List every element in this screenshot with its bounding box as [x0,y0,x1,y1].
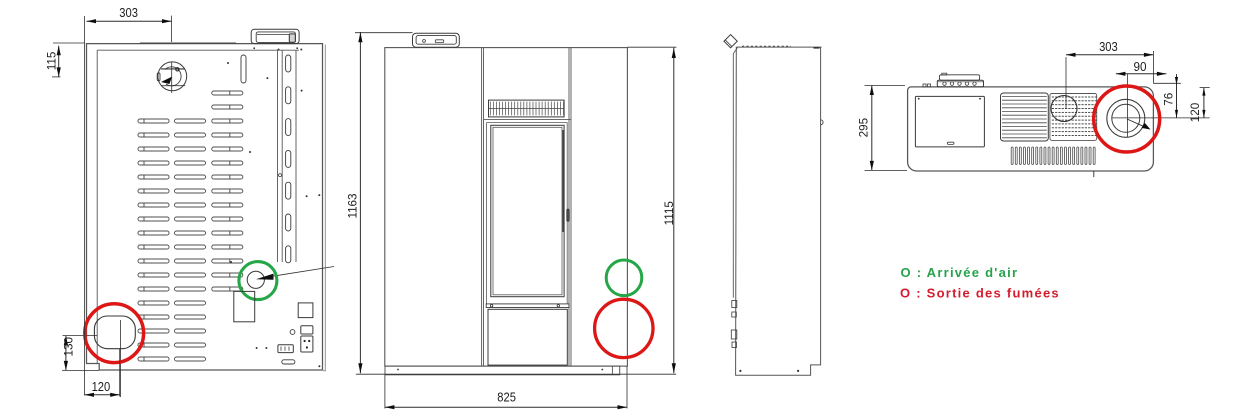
svg-text:303: 303 [119,5,138,20]
svg-text:1115: 1115 [662,201,676,226]
svg-text:130: 130 [61,337,75,357]
svg-text:76: 76 [1161,92,1175,105]
svg-text:120: 120 [1188,102,1202,122]
svg-text:303: 303 [1099,39,1118,54]
svg-text:825: 825 [497,390,516,405]
svg-text:O : Sortie des fumées: O : Sortie des fumées [900,286,1060,301]
svg-text:295: 295 [856,118,870,138]
svg-text:O : Arrivée d'air: O : Arrivée d'air [901,265,1019,280]
svg-text:120: 120 [92,379,111,394]
svg-text:1163: 1163 [345,193,359,218]
svg-text:90: 90 [1133,59,1146,74]
svg-text:115: 115 [44,51,58,70]
